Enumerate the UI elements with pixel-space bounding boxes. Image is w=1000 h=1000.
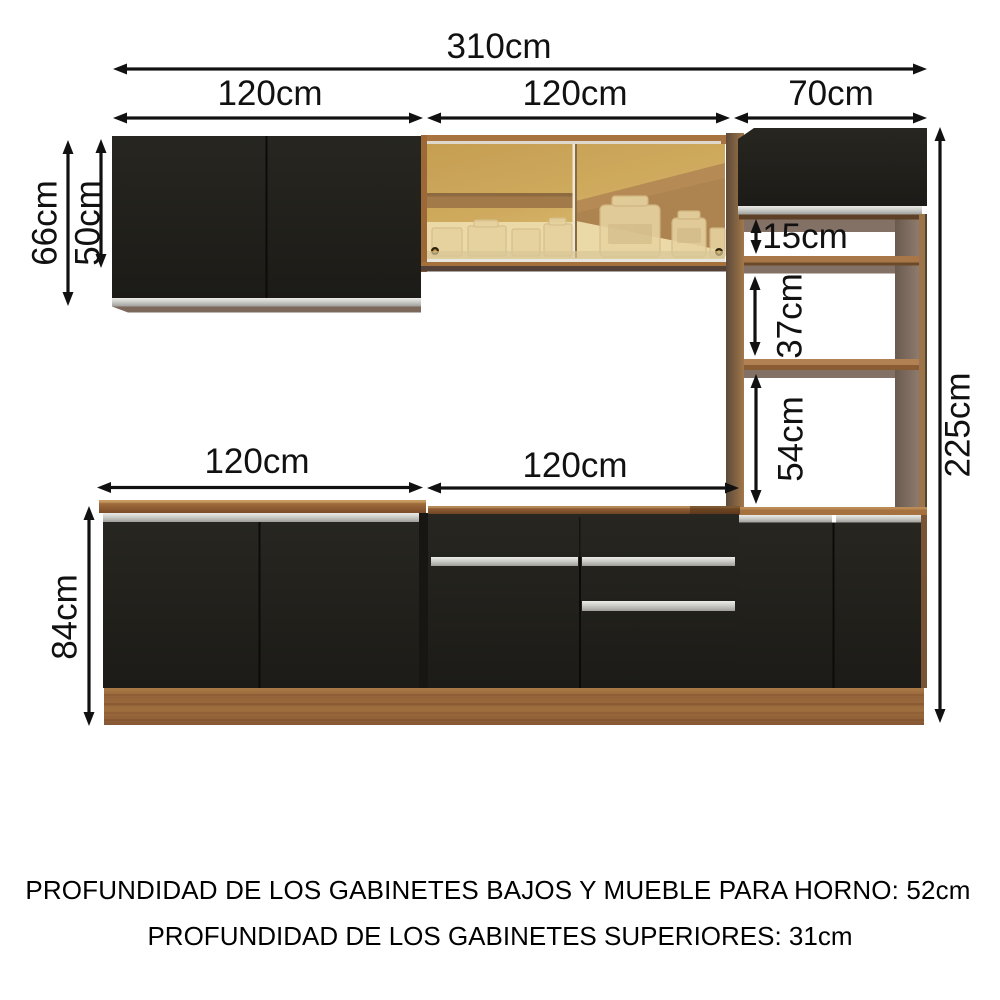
svg-text:70cm: 70cm bbox=[788, 74, 874, 113]
svg-text:310cm: 310cm bbox=[446, 27, 551, 66]
svg-text:120cm: 120cm bbox=[204, 442, 309, 481]
svg-text:54cm: 54cm bbox=[772, 396, 811, 482]
svg-text:37cm: 37cm bbox=[771, 273, 810, 359]
svg-text:120cm: 120cm bbox=[522, 446, 627, 485]
svg-text:15cm: 15cm bbox=[762, 217, 848, 256]
svg-text:225cm: 225cm bbox=[939, 372, 978, 477]
svg-text:120cm: 120cm bbox=[217, 74, 322, 113]
svg-text:PROFUNDIDAD DE LOS GABINETES B: PROFUNDIDAD DE LOS GABINETES BAJOS Y MUE… bbox=[25, 875, 970, 905]
svg-text:PROFUNDIDAD DE LOS GABINETES S: PROFUNDIDAD DE LOS GABINETES SUPERIORES:… bbox=[147, 921, 852, 951]
svg-text:120cm: 120cm bbox=[522, 74, 627, 113]
svg-text:66cm: 66cm bbox=[26, 180, 65, 266]
svg-text:84cm: 84cm bbox=[46, 574, 85, 660]
